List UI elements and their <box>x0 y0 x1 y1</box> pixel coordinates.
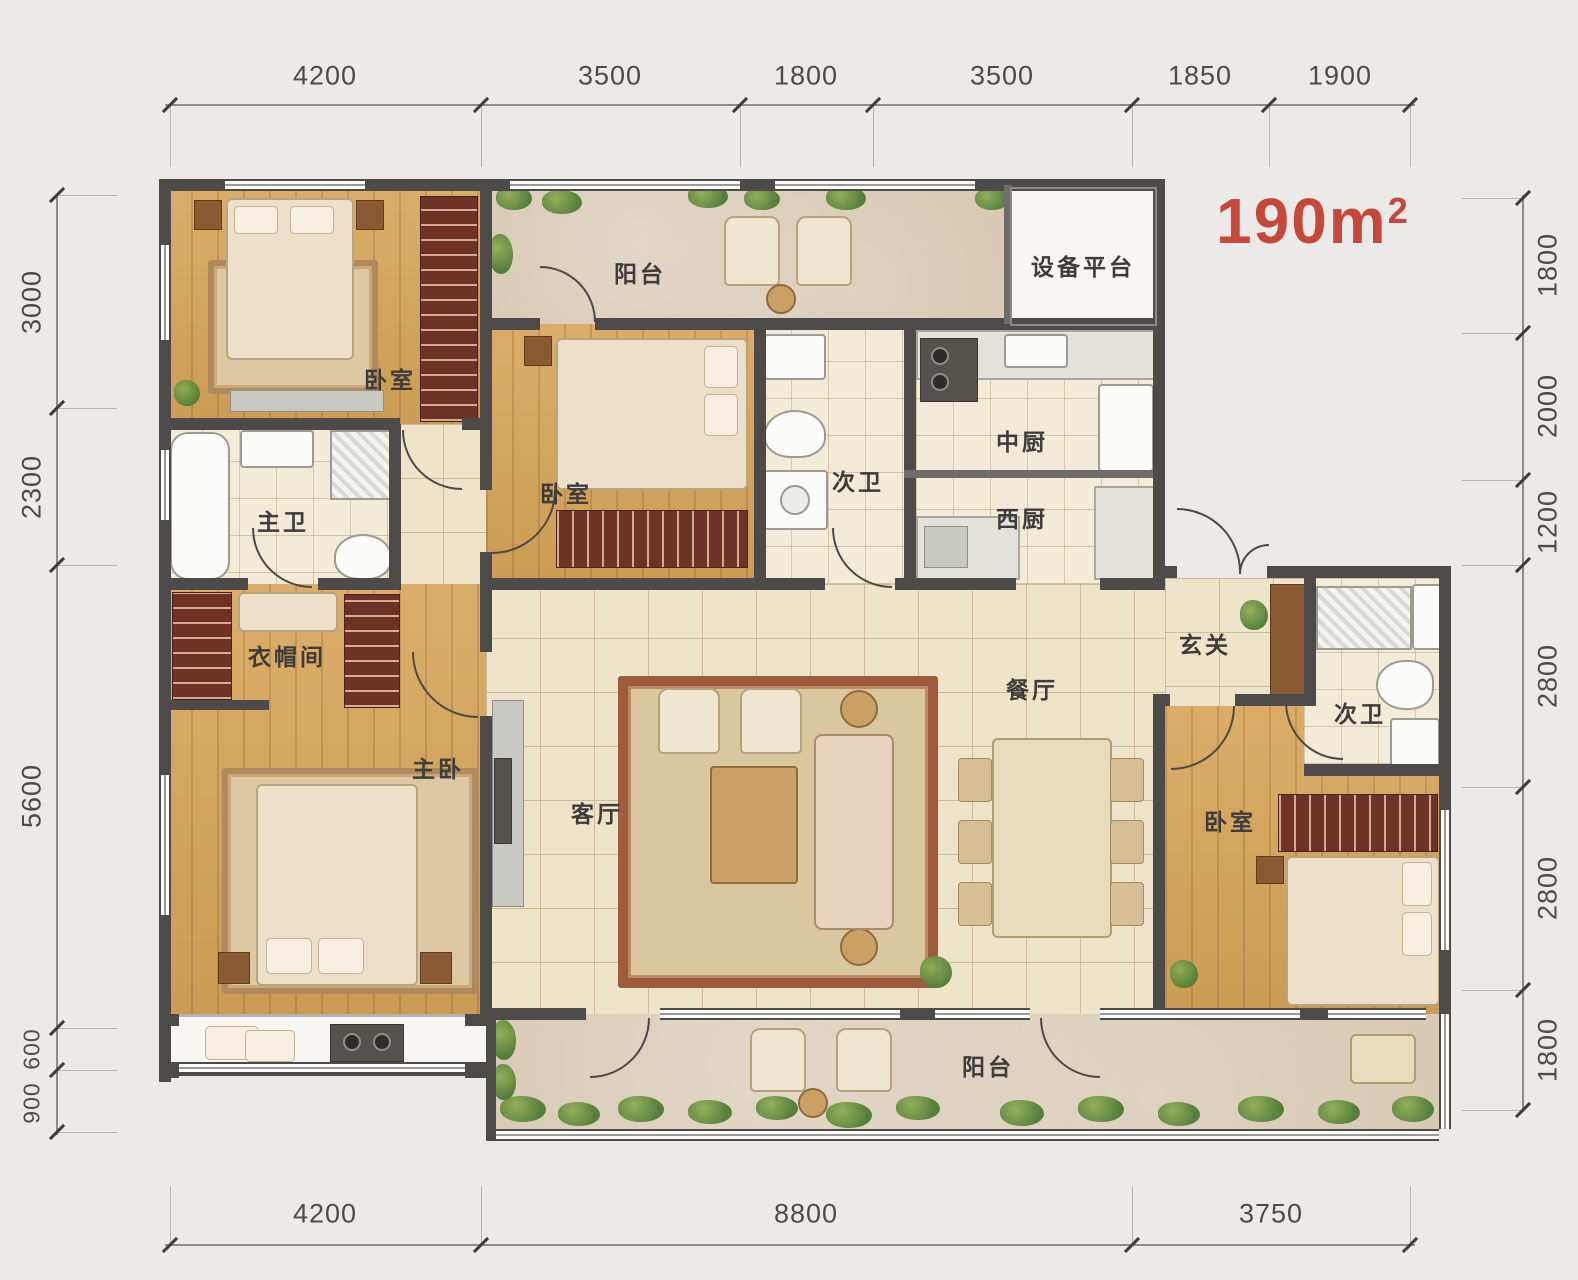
wall <box>480 716 492 1014</box>
shower <box>1316 586 1412 650</box>
wall <box>159 1014 179 1026</box>
lounge-chair <box>750 1028 806 1092</box>
wall <box>465 1062 492 1078</box>
cushion <box>245 1030 295 1062</box>
extension-line <box>481 1186 482 1244</box>
label-bedroom-top-left: 卧室 <box>364 361 416 395</box>
area-exponent: 2 <box>1388 190 1410 231</box>
label-living-room: 客厅 <box>571 795 623 829</box>
extension-line <box>1462 1110 1522 1111</box>
wall <box>895 578 1016 590</box>
label-dining-room: 餐厅 <box>1006 671 1058 705</box>
dim-top-1: 3500 <box>578 61 642 92</box>
wall <box>486 578 825 590</box>
grill-tray <box>330 1024 404 1062</box>
window <box>159 245 171 340</box>
wall <box>754 324 766 590</box>
wall <box>159 700 269 710</box>
dim-top-3: 3500 <box>970 61 1034 92</box>
window <box>660 1008 900 1020</box>
dim-left-4: 900 <box>19 1082 46 1123</box>
label-balcony-top: 阳台 <box>614 255 666 289</box>
dim-left-2: 5600 <box>17 764 48 828</box>
label-cloakroom: 衣帽间 <box>248 638 326 672</box>
wardrobe <box>1278 794 1438 852</box>
dining-chair <box>958 882 992 926</box>
plant <box>1158 1102 1200 1126</box>
basket <box>1350 1034 1416 1084</box>
balcony-table <box>798 1088 828 1118</box>
window <box>159 775 171 915</box>
dim-top-0: 4200 <box>293 61 357 92</box>
wall <box>462 418 492 430</box>
wall <box>480 318 540 330</box>
dim-left-3: 600 <box>19 1028 46 1069</box>
label-bedroom-right: 卧室 <box>1204 803 1256 837</box>
label-master-bedroom: 主卧 <box>412 750 464 784</box>
toilet <box>764 410 826 458</box>
pillow <box>290 206 334 234</box>
bench-wardrobe <box>556 510 748 568</box>
window <box>510 179 740 191</box>
nightstand <box>524 336 552 366</box>
wall <box>1100 578 1165 590</box>
label-bath-right: 次卫 <box>1334 695 1386 729</box>
pillow <box>266 938 312 974</box>
dim-right-4: 2800 <box>1533 856 1564 920</box>
label-bedroom-second: 卧室 <box>540 475 592 509</box>
balcony-table <box>766 284 796 314</box>
extension-line <box>57 408 117 409</box>
plant <box>1238 1096 1284 1122</box>
bay-sill-line <box>179 1014 465 1017</box>
area-number: 190 <box>1216 185 1329 257</box>
extension-line <box>1462 990 1522 991</box>
wall <box>1267 566 1451 578</box>
lounge-chair <box>836 1028 892 1092</box>
extension-line <box>1462 198 1522 199</box>
dining-chair <box>1110 882 1144 926</box>
plant <box>1392 1096 1434 1122</box>
extension-line <box>1132 105 1133 167</box>
dining-chair <box>1110 758 1144 802</box>
extension-line <box>1462 565 1522 566</box>
nightstand <box>194 200 222 230</box>
armchair <box>658 688 720 754</box>
appliance <box>924 526 968 568</box>
wall <box>159 578 248 590</box>
tv-console <box>230 390 384 412</box>
coffee-table <box>710 766 798 884</box>
wall <box>1300 1008 1328 1020</box>
pillow <box>318 938 364 974</box>
extension-line <box>1462 480 1522 481</box>
area-unit: m <box>1329 185 1388 257</box>
plant <box>1078 1096 1124 1122</box>
lounge-chair <box>724 216 780 286</box>
plant <box>174 380 200 406</box>
plant <box>618 1096 664 1122</box>
extension-line <box>481 105 482 167</box>
wardrobe <box>420 196 478 422</box>
window <box>935 1008 1030 1020</box>
extension-line <box>170 1186 171 1244</box>
side-table <box>840 928 878 966</box>
dining-chair <box>958 820 992 864</box>
armchair <box>740 688 802 754</box>
bay-window <box>179 1062 465 1076</box>
plant <box>1240 600 1268 630</box>
fridge <box>1098 384 1154 472</box>
plant <box>1000 1100 1044 1126</box>
floor-plan: 卧室 阳台 设备平台 主卫 卧室 次卫 中厨 西厨 衣帽间 主卧 客厅 餐厅 玄… <box>0 0 1578 1280</box>
label-balcony-bottom: 阳台 <box>962 1048 1014 1082</box>
window <box>159 450 171 520</box>
sink <box>764 334 826 380</box>
dim-right-0: 1800 <box>1533 233 1564 297</box>
dining-chair <box>958 758 992 802</box>
dim-top-2: 1800 <box>774 61 838 92</box>
entry-door-arc <box>1239 544 1269 574</box>
wall-thin <box>904 470 1153 478</box>
sink <box>240 430 314 468</box>
dim-bottom-0: 4200 <box>293 1199 357 1230</box>
wall <box>480 179 492 490</box>
plant <box>542 190 582 214</box>
pillow <box>234 206 278 234</box>
plant <box>500 1096 546 1122</box>
extension-line <box>1269 105 1270 167</box>
balcony-window <box>496 1129 1439 1141</box>
shower <box>330 430 394 500</box>
plant <box>756 1096 798 1120</box>
area-badge: 190m2 <box>1216 184 1410 258</box>
dim-right-2: 1200 <box>1533 490 1564 554</box>
extension-line <box>740 105 741 167</box>
dim-bottom-1: 8800 <box>774 1199 838 1230</box>
window <box>775 179 975 191</box>
extension-line <box>1410 105 1411 167</box>
balcony-window <box>1439 1014 1451 1129</box>
extension-line <box>1462 333 1522 334</box>
wall <box>159 418 400 430</box>
wardrobe <box>172 592 232 700</box>
wall <box>1159 566 1177 578</box>
foyer-cabinet <box>1270 584 1306 698</box>
wall <box>318 578 401 590</box>
dining-chair <box>1110 820 1144 864</box>
entry-door-arc <box>1177 508 1241 572</box>
nightstand <box>420 952 452 984</box>
pillow <box>704 346 738 388</box>
wall <box>159 1062 179 1078</box>
extension-line <box>873 105 874 167</box>
dim-left-0: 3000 <box>17 270 48 334</box>
plant <box>558 1102 600 1126</box>
pillow <box>704 394 738 436</box>
sink <box>1390 718 1440 770</box>
lounge-chair <box>796 216 852 286</box>
nightstand <box>218 952 250 984</box>
kitchen-sink <box>1004 334 1068 368</box>
label-kitchen-western: 西厨 <box>996 500 1048 534</box>
extension-line <box>170 105 171 167</box>
nightstand <box>356 200 384 230</box>
plant <box>920 956 952 988</box>
wall <box>1304 578 1316 706</box>
dim-top-4: 1850 <box>1168 61 1232 92</box>
wardrobe <box>344 594 400 708</box>
extension-line <box>1410 1186 1411 1244</box>
washing-machine <box>762 470 828 530</box>
extension-line <box>1462 787 1522 788</box>
kitchen-counter <box>1094 486 1157 580</box>
wall <box>486 1008 586 1020</box>
label-bath-mid: 次卫 <box>832 463 884 497</box>
dim-right-1: 2000 <box>1533 374 1564 438</box>
dining-table <box>992 738 1112 938</box>
stove <box>920 338 978 402</box>
window <box>1100 1008 1300 1020</box>
dim-right-3: 2800 <box>1533 644 1564 708</box>
extension-line <box>57 1070 117 1071</box>
toilet <box>334 534 392 580</box>
dimension-line-bottom <box>165 1244 1415 1246</box>
bathtub <box>170 432 230 580</box>
plant <box>826 1102 872 1128</box>
label-equipment-platform: 设备平台 <box>1031 248 1135 282</box>
sofa <box>814 734 894 930</box>
nightstand <box>1256 856 1284 884</box>
label-kitchen-chinese: 中厨 <box>996 423 1048 457</box>
pillow <box>1402 862 1432 906</box>
wall <box>389 424 401 590</box>
side-table <box>840 690 878 728</box>
dim-right-5: 1800 <box>1533 1018 1564 1082</box>
plant <box>489 234 513 274</box>
window <box>1328 1008 1426 1020</box>
bench <box>238 592 338 632</box>
wall <box>1304 764 1451 776</box>
extension-line <box>57 195 117 196</box>
extension-line <box>57 1132 117 1133</box>
pillow <box>1402 912 1432 956</box>
dimension-line-top <box>165 104 1415 106</box>
dim-left-1: 2300 <box>17 455 48 519</box>
plant <box>744 188 780 210</box>
wall <box>480 552 492 652</box>
wall <box>1159 694 1170 706</box>
dimension-line-left <box>56 195 58 1135</box>
extension-line <box>57 565 117 566</box>
label-master-bath: 主卫 <box>257 503 309 537</box>
extension-line <box>1132 1186 1133 1244</box>
label-foyer: 玄关 <box>1179 626 1231 660</box>
plant <box>688 1100 732 1124</box>
wall <box>1153 694 1165 1014</box>
extension-line <box>57 1028 117 1029</box>
tv <box>494 758 512 844</box>
plant <box>896 1096 940 1120</box>
dim-bottom-2: 3750 <box>1239 1199 1303 1230</box>
wall <box>904 324 916 590</box>
plant <box>1170 960 1198 988</box>
dim-top-5: 1900 <box>1308 61 1372 92</box>
wall <box>900 1008 935 1020</box>
window <box>225 179 365 191</box>
plant <box>1318 1100 1360 1124</box>
window <box>1439 810 1451 950</box>
